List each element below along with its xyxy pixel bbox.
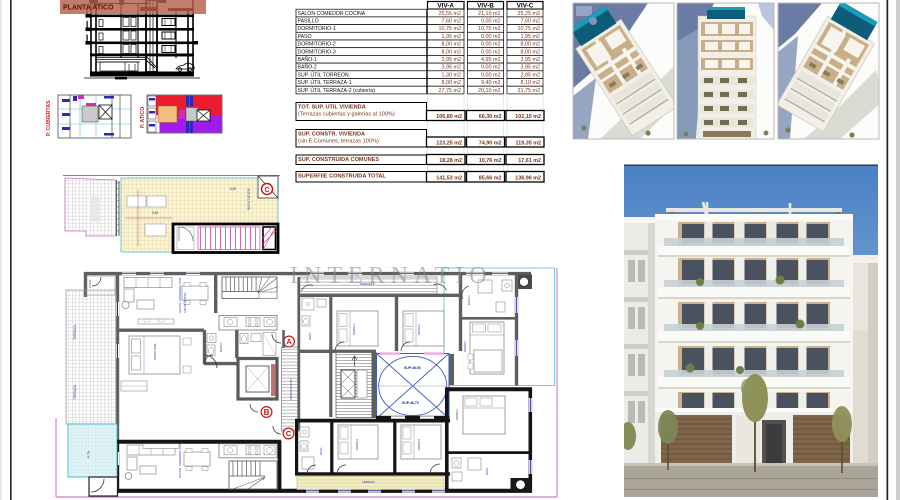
svg-text:8,00 m2: 8,00 m2 <box>521 42 540 48</box>
svg-text:0,00 m2: 0,00 m2 <box>481 72 500 78</box>
svg-text:0,00 m2: 0,00 m2 <box>481 42 500 48</box>
svg-text:20,10 m2: 20,10 m2 <box>478 88 500 94</box>
svg-text:9,45: 9,45 <box>152 211 158 215</box>
svg-text:8,00 m2: 8,00 m2 <box>442 80 461 86</box>
svg-text:BAÑO-2: BAÑO-2 <box>298 64 317 71</box>
svg-text:1,30 m2: 1,30 m2 <box>442 72 461 78</box>
svg-text:C: C <box>264 187 269 194</box>
svg-text:1,95 m2: 1,95 m2 <box>442 34 461 40</box>
svg-text:123,25 m2: 123,25 m2 <box>436 141 462 147</box>
svg-text:P.CLIM: P.CLIM <box>88 280 92 288</box>
svg-text:8,00 m2: 8,00 m2 <box>442 42 461 48</box>
svg-text:DORM-2: DORM-2 <box>355 439 359 450</box>
svg-text:18,28 m2: 18,28 m2 <box>439 158 462 164</box>
svg-text:136,96 m2: 136,96 m2 <box>515 176 541 182</box>
svg-text:DORM. PPAL: DORM. PPAL <box>153 343 157 360</box>
svg-text:TERRAZA SUP.UT.: TERRAZA SUP.UT. <box>289 377 293 400</box>
svg-text:SUP.UT.:25,55m2: SUP.UT.:25,55m2 <box>183 292 187 313</box>
svg-text:0,00 m2: 0,00 m2 <box>481 34 500 40</box>
svg-text:TERRAZA: TERRAZA <box>73 324 77 340</box>
svg-text:DORMITORIO-3: DORMITORIO-3 <box>298 49 336 55</box>
svg-text:TOT. SUP. UTIL VIVIENDA: TOT. SUP. UTIL VIVIENDA <box>298 105 366 111</box>
svg-text:0,00 m2: 0,00 m2 <box>481 19 500 25</box>
svg-text:SUP. ÚTIL TERRAZA-1: SUP. ÚTIL TERRAZA-1 <box>298 79 352 86</box>
svg-text:DORM-1: DORM-1 <box>352 324 356 335</box>
svg-text:PLANTA ATICO: PLANTA ATICO <box>63 5 114 12</box>
svg-text:DORM-2: DORM-2 <box>417 324 421 335</box>
svg-text:SUP:46,50: SUP:46,50 <box>404 366 421 370</box>
svg-text:(Terrazas cubiertas y galerias: (Terrazas cubiertas y galerias al 100%) <box>298 112 395 118</box>
svg-text:DORM-1: DORM-1 <box>455 409 459 420</box>
svg-text:DORM-3: DORM-3 <box>417 439 421 450</box>
svg-text:7,60 m2: 7,60 m2 <box>521 19 540 25</box>
svg-text:3,95 m2: 3,95 m2 <box>442 57 461 63</box>
svg-text:SUP. ÚTIL TERRAZA-2 (cubierta): SUP. ÚTIL TERRAZA-2 (cubierta) <box>298 87 376 94</box>
svg-text:8,10 m2: 8,10 m2 <box>521 80 540 86</box>
svg-text:74,90 m2: 74,90 m2 <box>479 141 502 147</box>
svg-text:25,25 m2: 25,25 m2 <box>518 11 540 17</box>
svg-text:VIV-A: VIV-A <box>437 3 454 10</box>
svg-text:VIV-C: VIV-C <box>517 3 534 10</box>
svg-text:3,95 m2: 3,95 m2 <box>442 65 461 71</box>
svg-text:B: B <box>264 408 270 417</box>
svg-text:3,95 m2: 3,95 m2 <box>521 57 540 63</box>
svg-text:21,75 m2: 21,75 m2 <box>518 88 540 94</box>
svg-text:8,00 m2: 8,00 m2 <box>442 49 461 55</box>
svg-text:PASO: PASO <box>298 34 312 40</box>
svg-text:10,75 m2: 10,75 m2 <box>439 26 461 32</box>
svg-text:DORMITORIO-1: DORMITORIO-1 <box>298 26 336 32</box>
svg-text:9,40 m2: 9,40 m2 <box>481 80 500 86</box>
svg-text:0,00 m2: 0,00 m2 <box>481 49 500 55</box>
svg-text:P-TV: P-TV <box>87 450 91 458</box>
svg-text:5,90: 5,90 <box>230 187 236 191</box>
svg-text:0,00 m2: 0,00 m2 <box>481 65 500 71</box>
svg-text:102,15 m2: 102,15 m2 <box>515 114 541 120</box>
svg-text:2,85 m2: 2,85 m2 <box>521 72 540 78</box>
svg-text:PASILLO: PASILLO <box>298 19 319 25</box>
svg-text:SUP:46,70: SUP:46,70 <box>402 401 419 405</box>
svg-text:A: A <box>286 337 292 346</box>
svg-text:106,80 m2: 106,80 m2 <box>436 114 462 120</box>
svg-text:DORM-1: DORM-1 <box>463 341 467 352</box>
svg-text:8,00 m2: 8,00 m2 <box>521 49 540 55</box>
svg-text:C: C <box>286 429 292 438</box>
svg-text:4,95 m2: 4,95 m2 <box>481 57 500 63</box>
svg-text:17,61 m2: 17,61 m2 <box>518 158 541 164</box>
svg-text:7,60 m2: 7,60 m2 <box>442 19 461 25</box>
svg-text:P. ATICO: P. ATICO <box>140 107 146 128</box>
svg-text:P. CUBIERTAS: P. CUBIERTAS <box>46 100 52 136</box>
svg-text:21,10 m2: 21,10 m2 <box>478 11 500 17</box>
svg-text:SUP. CONSTR. VIVIENDA: SUP. CONSTR. VIVIENDA <box>298 132 365 138</box>
svg-text:10,76 m2: 10,76 m2 <box>479 158 502 164</box>
svg-text:85,66 m2: 85,66 m2 <box>479 176 502 182</box>
svg-text:VIV-B: VIV-B <box>477 3 494 10</box>
svg-text:27,75 m2: 27,75 m2 <box>439 88 461 94</box>
svg-text:3,95 m2: 3,95 m2 <box>521 65 540 71</box>
svg-text:TERRAZA: TERRAZA <box>73 384 77 400</box>
svg-text:SUP.UT.ATICO: SUP.UT.ATICO <box>247 188 251 210</box>
svg-text:25,55 m2: 25,55 m2 <box>439 11 461 17</box>
svg-text:BAÑO-1: BAÑO-1 <box>298 56 317 63</box>
svg-text:SALON, COMEDOR, COC.: SALON, COMEDOR, COC. <box>178 276 182 313</box>
svg-text:INTERNATIO: INTERNATIO <box>290 263 493 289</box>
svg-text:TERRAZA: TERRAZA <box>362 480 375 484</box>
svg-text:SALON COMEDOR COCINA: SALON COMEDOR COCINA <box>298 11 366 17</box>
svg-text:SUP. CONSTRUIDA COMUNES: SUP. CONSTRUIDA COMUNES <box>298 157 379 163</box>
svg-text:1,95 m2: 1,95 m2 <box>521 34 540 40</box>
svg-text:10,75 m2: 10,75 m2 <box>518 26 540 32</box>
svg-text:DORMITORIO-2: DORMITORIO-2 <box>298 42 336 48</box>
svg-text:SUPERFIIE CONSTRUIDA TOTAL: SUPERFIIE CONSTRUIDA TOTAL <box>298 174 386 180</box>
svg-text:SUP. ÚTIL TORREON: SUP. ÚTIL TORREON <box>298 71 349 78</box>
svg-text:66,30 m2: 66,30 m2 <box>479 114 502 120</box>
svg-text:(sin E.Comunes, terrazas 100%): (sin E.Comunes, terrazas 100%) <box>298 139 379 145</box>
svg-text:10,75 m2: 10,75 m2 <box>478 26 500 32</box>
svg-text:119,35 m2: 119,35 m2 <box>516 141 541 147</box>
svg-text:141,53 m2: 141,53 m2 <box>436 176 462 182</box>
